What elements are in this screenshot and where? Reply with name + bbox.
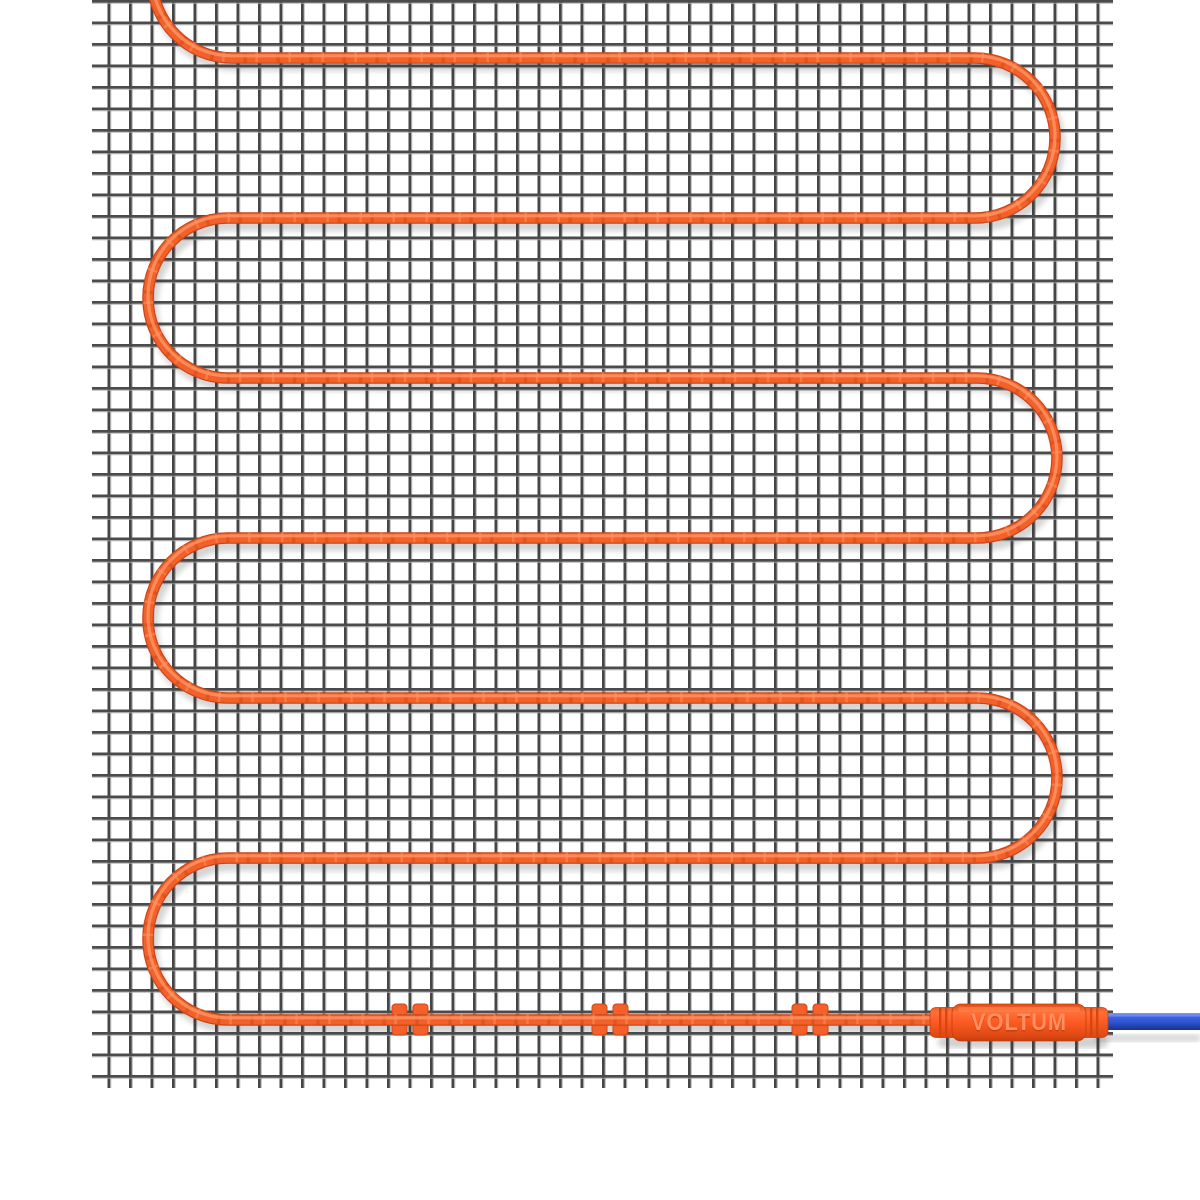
connector-ridge [1096,1008,1098,1038]
cold-lead-shadow [1095,1034,1200,1042]
connector-ridge [945,1008,947,1038]
connector: VOLTUM VOLTUM [930,1004,1108,1048]
connector-ridge [1090,1008,1092,1038]
cold-lead-highlight [1095,1015,1200,1017]
heating-mat-product-image: VOLTUM VOLTUM [0,0,1200,1200]
brand-label: VOLTUM [971,1009,1067,1036]
cold-lead-cable [1095,1013,1200,1042]
connector-ridge [939,1008,941,1038]
heating-mat-scene: VOLTUM VOLTUM [0,0,1200,1200]
